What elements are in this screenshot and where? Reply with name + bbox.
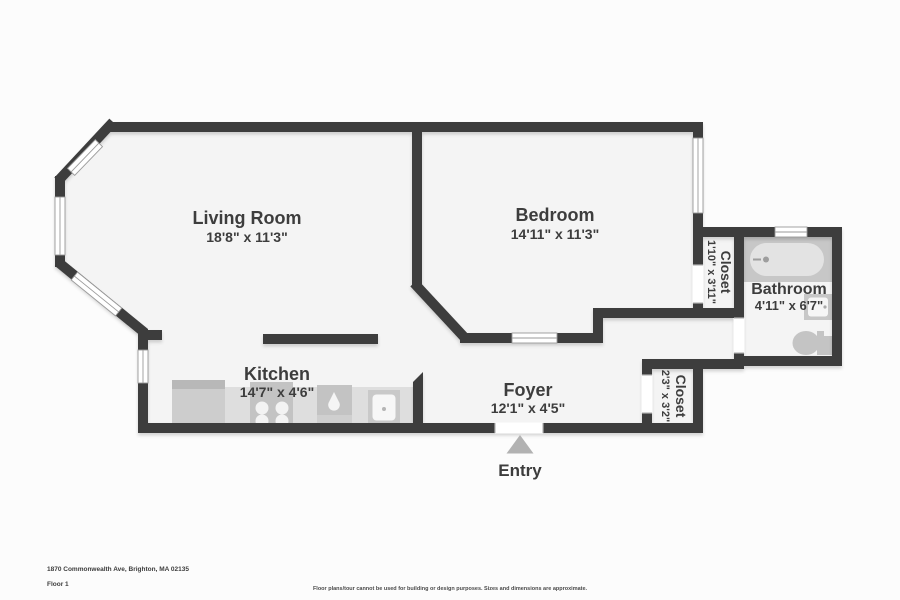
closet-foyer-door	[642, 375, 653, 413]
foyer-dims: 12'1" x 4'5"	[491, 400, 565, 416]
kitchen-window	[138, 350, 148, 383]
bathroom-door	[734, 318, 745, 353]
kitchen-sink	[317, 385, 352, 424]
closet-bedroom-door	[693, 265, 704, 303]
floor-plan-drawing: Living Room 18'8" x 11'3" Bedroom 14'11"…	[0, 0, 900, 600]
closet-foyer-dims: 2'3" x 3'2"	[659, 370, 671, 422]
bathtub	[744, 237, 832, 282]
bedroom-right-window	[693, 138, 703, 213]
floor-plan-page: Living Room 18'8" x 11'3" Bedroom 14'11"…	[0, 0, 900, 600]
closet-bedroom-label: Closet	[718, 251, 734, 294]
entry-label: Entry	[498, 461, 542, 480]
living-room-label: Living Room	[193, 208, 302, 228]
refrigerator-top	[172, 380, 225, 389]
tub-drain-icon	[763, 257, 769, 263]
bathroom-dims: 4'11" x 6'7"	[755, 298, 823, 313]
living-room-dims: 18'8" x 11'3"	[206, 229, 287, 245]
closet-foyer-label: Closet	[673, 375, 689, 418]
stove-burner	[256, 402, 269, 415]
stove-burner	[276, 402, 289, 415]
bathroom-window	[775, 227, 807, 237]
kitchen-dims: 14'7" x 4'6"	[240, 384, 314, 400]
bedroom-dims: 14'11" x 11'3"	[511, 226, 599, 242]
footer-floor: Floor 1	[47, 581, 69, 588]
bedroom-bottom-window	[512, 333, 557, 343]
foyer-label: Foyer	[503, 380, 552, 400]
closet-bedroom-dims: 1'10" x 3'11"	[705, 240, 717, 304]
entry-arrow-icon	[507, 435, 534, 454]
kitchen-label: Kitchen	[244, 364, 310, 384]
entry-opening	[495, 423, 543, 434]
wall-kitchen-foyer-partition	[413, 372, 423, 433]
footer: 1870 Commonwealth Ave, Brighton, MA 0213…	[47, 566, 588, 592]
bathroom-label: Bathroom	[751, 281, 827, 298]
dishwasher	[368, 390, 400, 424]
footer-disclaimer: Floor plans/tour cannot be used for buil…	[313, 586, 588, 592]
bay-window-left	[55, 197, 65, 255]
bedroom-label: Bedroom	[515, 205, 594, 225]
footer-address: 1870 Commonwealth Ave, Brighton, MA 0213…	[47, 566, 189, 573]
